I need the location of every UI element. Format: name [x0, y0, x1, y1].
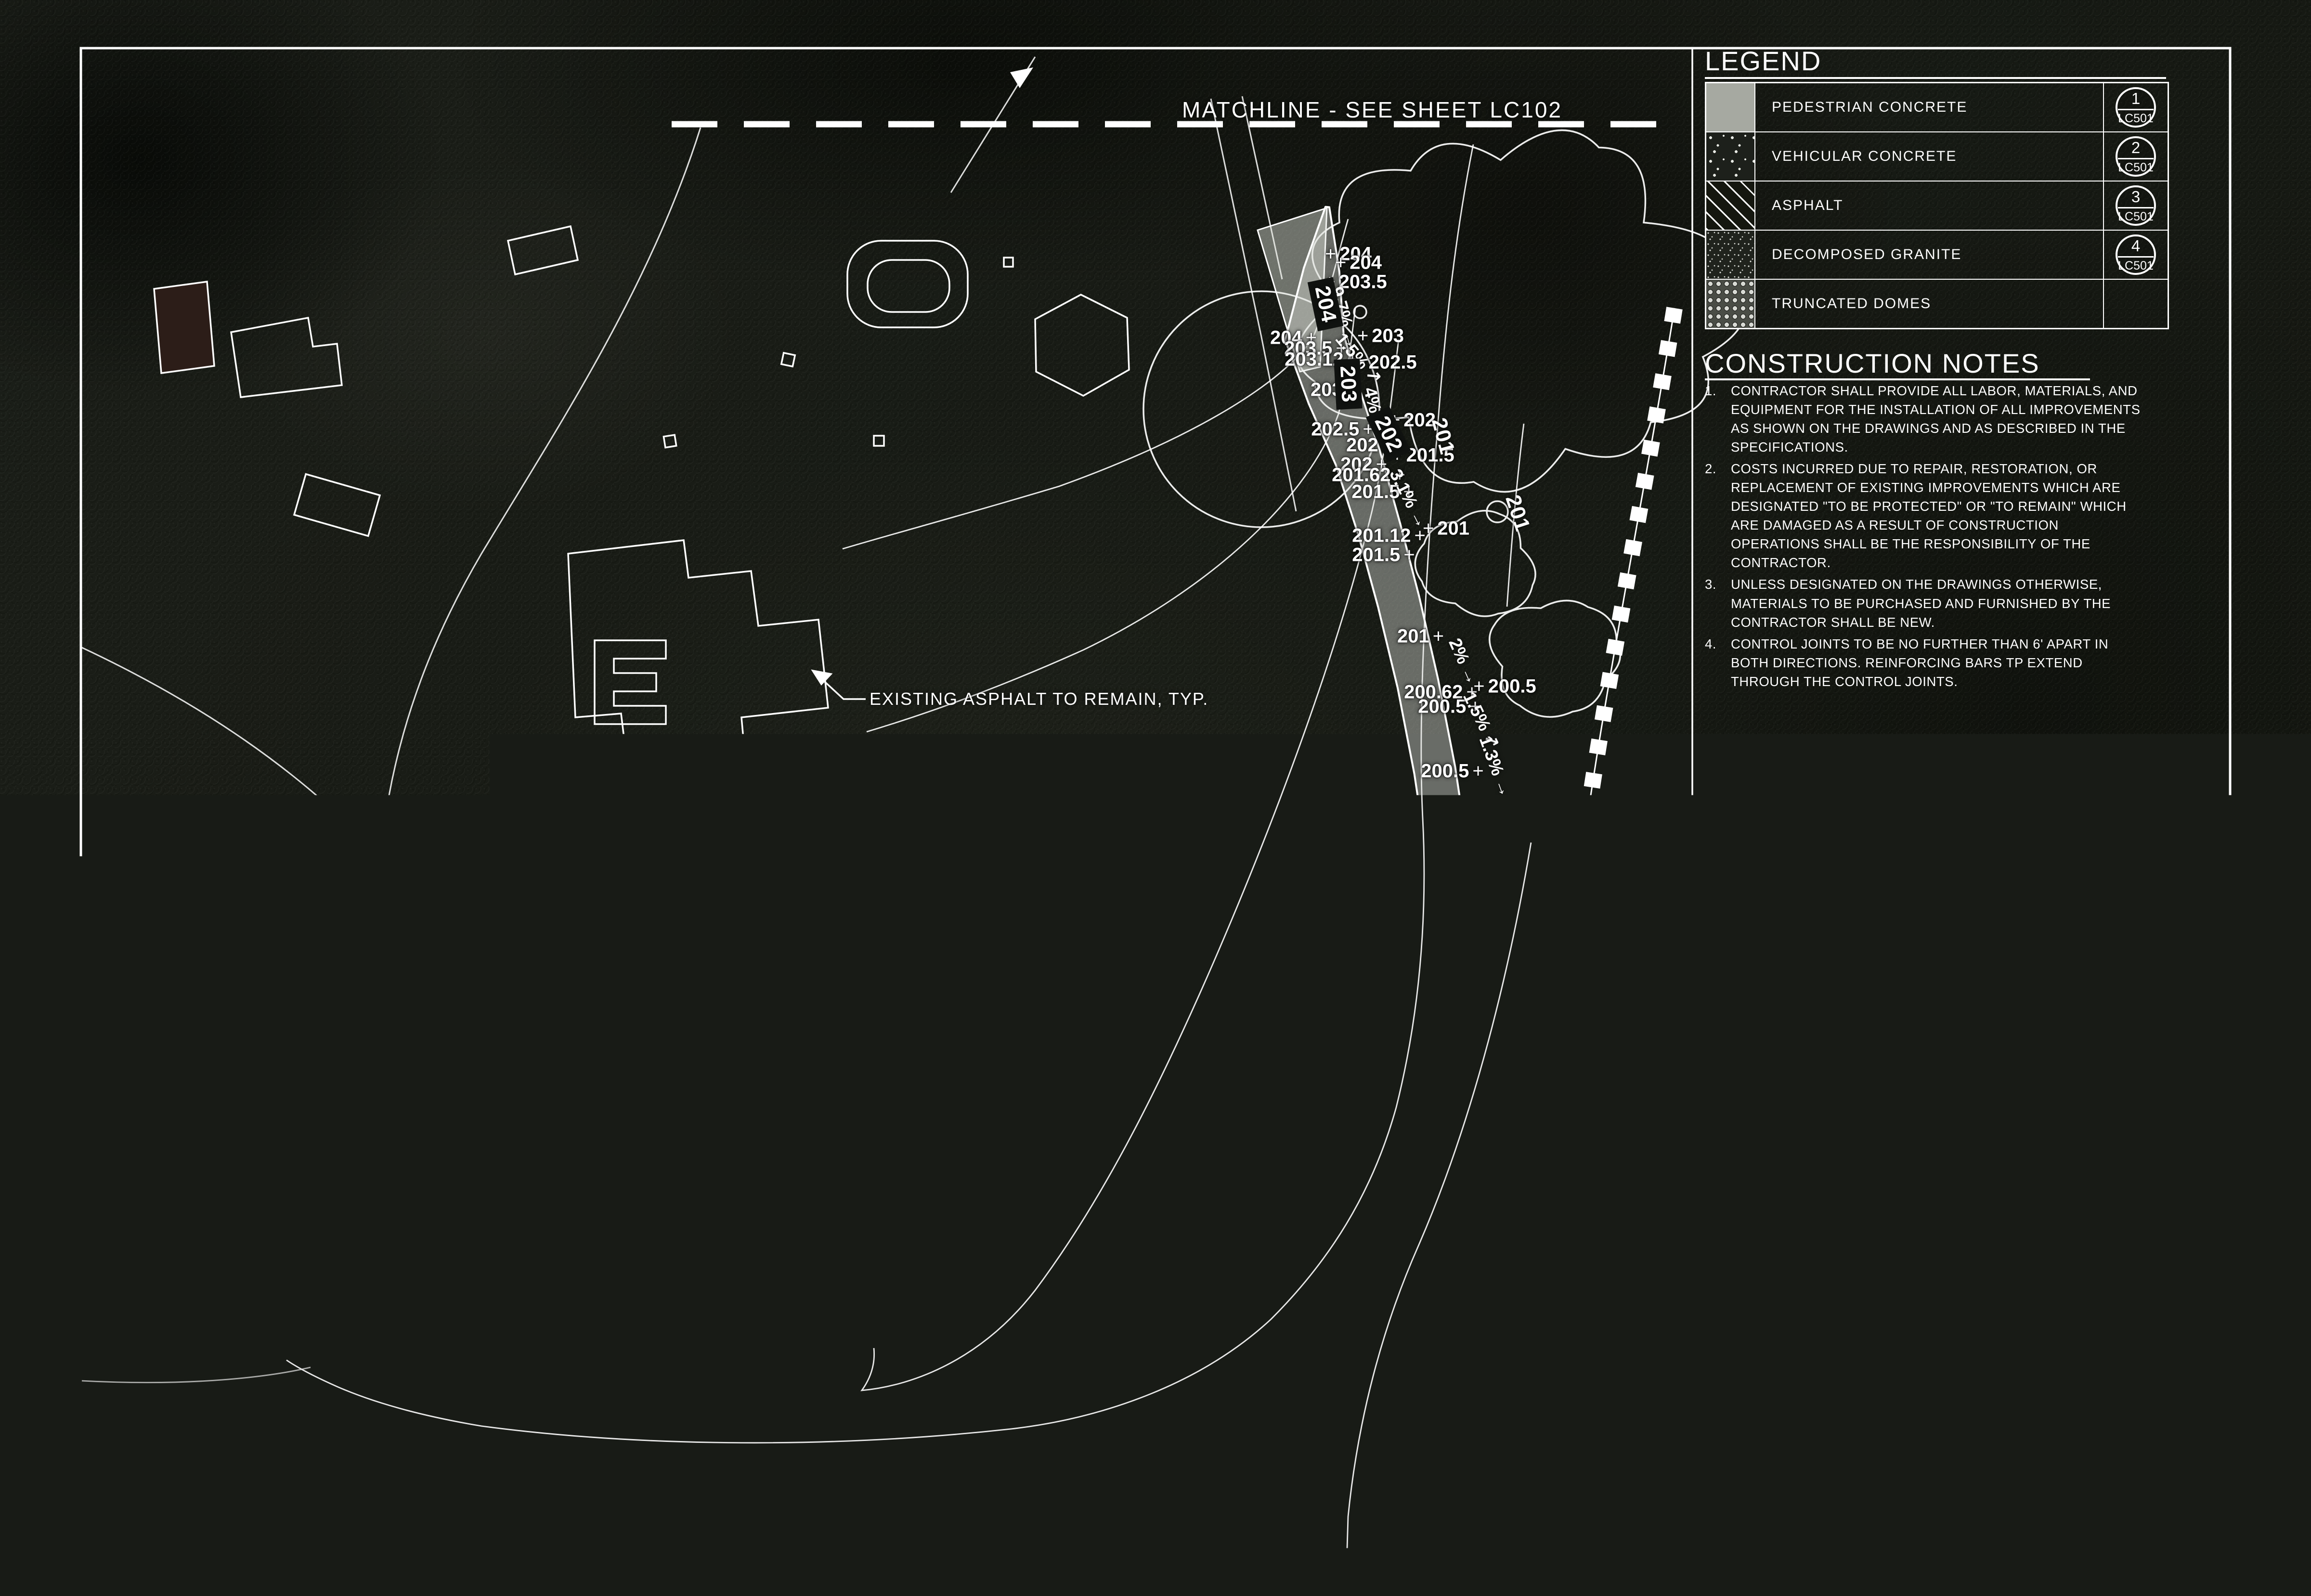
slope-arrow-label: ← 1.5% — [757, 1431, 821, 1455]
keymap-sheet-label: LC105 — [1972, 1278, 2037, 1302]
notes-title: CONSTRUCTION NOTES — [1705, 348, 2040, 379]
spot-elevation-label: 201.5+ — [1352, 545, 1418, 566]
legend-row: ASPHALT3LC501 — [1706, 182, 2168, 231]
contour-elevation-label: 203 — [1334, 358, 1362, 410]
scale-bar: 0204060 — [1871, 1472, 2073, 1496]
slope-arrow-label: 2% → — [1444, 635, 1482, 688]
spot-elevation-label: 201.62+ — [469, 1376, 546, 1398]
legend-swatch-granite-icon — [1706, 231, 1755, 279]
spot-elevation-label: 201.62+ — [842, 1415, 919, 1437]
slope-arrow-label: 0.5% → — [1156, 1372, 1222, 1413]
path-detail-callout-icon: 5LC501 — [1265, 1151, 1309, 1195]
scale-bar-segment — [1922, 1484, 1939, 1494]
keymap-sheet-label: LC106 — [2048, 1330, 2113, 1354]
plan-annotation: EXISTING ASPHALT TO REMAIN, TYP. — [870, 689, 1208, 709]
scale-unit: feet — [2079, 1451, 2106, 1469]
plan-sheet: MATCHLINE - SEE SHEET LC102 +204+204+203… — [0, 0, 2311, 1596]
detail-callout-icon: 4LC501 — [2116, 234, 2156, 275]
legend-rule — [1705, 77, 2166, 79]
construction-note: 2.COSTS INCURRED DUE TO REPAIR, RESTORAT… — [1705, 459, 2167, 572]
slope-arrow-label: ↓ 1.5% — [1092, 1409, 1149, 1440]
spot-elevation-label: +202 — [753, 1401, 803, 1423]
scale-tick-label: 40 — [1997, 1453, 2014, 1471]
legend-label: DECOMPOSED GRANITE — [1755, 231, 2103, 279]
legend-detail-callout — [2103, 280, 2168, 328]
legend-swatch-solid-icon — [1706, 83, 1755, 131]
legend-detail-callout: 3LC501 — [2103, 182, 2168, 230]
legend-row: DECOMPOSED GRANITE4LC501 — [1706, 231, 2168, 280]
legend-table: PEDESTRIAN CONCRETE1LC501VEHICULAR CONCR… — [1705, 82, 2169, 329]
construction-notes: CONSTRUCTION NOTES 1.CONTRACTOR SHALL PR… — [1705, 348, 2167, 694]
scale-bar-segment — [2005, 1473, 2072, 1483]
scale-box: 0204060 feet 1" = 20' — [1695, 1435, 2232, 1544]
legend-label: PEDESTRIAN CONCRETE — [1755, 83, 2103, 131]
detail-callout-icon: 3LC501 — [2116, 185, 2156, 226]
construction-note: 4.CONTROL JOINTS TO BE NO FURTHER THAN 6… — [1705, 635, 2167, 691]
spot-elevation-label: 201.12+ — [1183, 1332, 1260, 1353]
contour-elevation-label: 200 — [1388, 1224, 1426, 1268]
spot-elevation-label: 200.5+ — [1421, 761, 1487, 782]
legend-row: TRUNCATED DOMES — [1706, 280, 2168, 328]
construction-note: 3.UNLESS DESIGNATED ON THE DRAWINGS OTHE… — [1705, 575, 2167, 631]
keymap-sheet-label: LC104 — [1894, 1281, 1959, 1305]
north-arrow-icon — [1708, 1172, 1738, 1202]
keymap-box: LC101LC102LC103LC104LC105LC106LC107 — [1707, 1171, 2172, 1436]
legend-row: VEHICULAR CONCRETE2LC501 — [1706, 132, 2168, 182]
spot-elevation-label: 200.5+ — [1424, 999, 1490, 1021]
scale-tick-label: 0 — [1868, 1453, 1877, 1471]
legend-swatch-domes-icon — [1706, 280, 1755, 328]
legend-detail-callout: 4LC501 — [2103, 231, 2168, 279]
scale-bar-segment — [1889, 1484, 1906, 1494]
slope-arrow-label: ↓ 1.5% — [1427, 1101, 1474, 1157]
plan-annotation: PATH CROSS SLOPE TO BE 2% MAX. VERIFY IN… — [372, 1334, 865, 1354]
north-arrow-logo-icon — [1724, 1453, 1796, 1526]
contour-elevation-label: 202 — [822, 1380, 858, 1404]
plan-annotation: FEMA FLOOD HAZARD LINE — [562, 1458, 815, 1479]
scale-tick-label: 60 — [2063, 1453, 2081, 1471]
detail-callout-icon: 2LC501 — [2116, 136, 2156, 177]
slope-arrow-label: 1.4% → — [1305, 1227, 1368, 1282]
spot-elevation-label: 201.12+ — [345, 1351, 422, 1373]
keymap-title: KEY MAP (NTS) — [1707, 1130, 1918, 1162]
matchline-label: MATCHLINE - SEE SHEET LC102 — [1182, 97, 1562, 123]
spot-elevation-label: +201.5 — [865, 1459, 931, 1481]
spot-elevation-label: +201 — [1225, 1362, 1275, 1384]
legend-swatch-speckle-icon — [1706, 132, 1755, 181]
spot-elevation-label: +204 — [1332, 252, 1382, 274]
plan-annotation: EXISTING CONCRETE TO REMAIN, TYP. — [647, 1084, 1008, 1104]
scale-bar-segment — [1872, 1473, 1889, 1483]
contour-elevation-label: 202 — [855, 1360, 891, 1384]
scale-bar-segment — [1939, 1473, 1972, 1483]
legend-label: VEHICULAR CONCRETE — [1755, 132, 2103, 181]
keymap-sheet-label: LC107 — [2112, 1259, 2177, 1283]
legend-swatch-hatch-icon — [1706, 182, 1755, 230]
notes-list: 1.CONTRACTOR SHALL PROVIDE ALL LABOR, MA… — [1705, 381, 2167, 691]
scale-tick-label: 20 — [1930, 1453, 1948, 1471]
legend-detail-callout: 2LC501 — [2103, 132, 2168, 181]
contour-elevation-label: 201 — [1500, 492, 1534, 534]
keymap-sheet-label: LC102 — [1731, 1285, 1796, 1310]
scale-bar-segment — [1972, 1484, 2005, 1494]
spot-elevation-label: 200.62+ — [1332, 1156, 1409, 1178]
legend-detail-callout: 1LC501 — [2103, 83, 2168, 131]
keymap-sheet-label: LC103 — [1816, 1275, 1881, 1299]
spot-elevation-label: 201+ — [1397, 626, 1447, 648]
legend-label: TRUNCATED DOMES — [1755, 280, 2103, 328]
legend-row: PEDESTRIAN CONCRETE1LC501 — [1706, 83, 2168, 132]
keymap-rule — [1707, 1162, 2140, 1164]
legend-title: LEGEND — [1705, 45, 1821, 77]
spot-elevation-label: +201.5 — [1015, 1411, 1081, 1432]
scale-ratio: 1" = 20' — [1871, 1504, 1922, 1521]
keymap-sheet-lc103 — [1809, 1230, 1901, 1375]
legend-label: ASPHALT — [1755, 182, 2103, 230]
notes-rule — [1705, 378, 2090, 380]
detail-callout-icon: 1LC501 — [2116, 87, 2156, 128]
construction-note: 1.CONTRACTOR SHALL PROVIDE ALL LABOR, MA… — [1705, 381, 2167, 456]
scale-bar-segment — [1906, 1473, 1922, 1483]
